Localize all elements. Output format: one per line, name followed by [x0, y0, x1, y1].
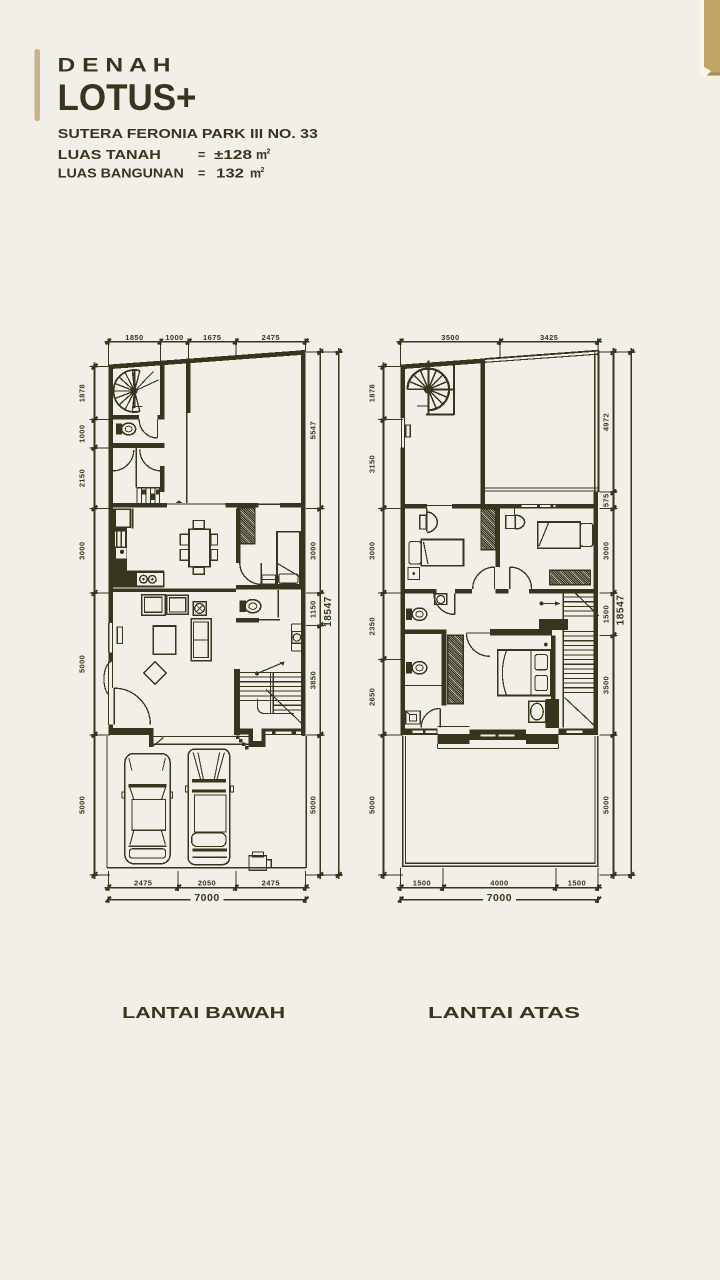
svg-text:1500: 1500 — [413, 878, 431, 887]
svg-text:LANTAI ATAS: LANTAI ATAS — [428, 1005, 580, 1022]
svg-text:1000: 1000 — [165, 333, 183, 342]
svg-text:4972: 4972 — [601, 413, 610, 431]
svg-text:5000: 5000 — [77, 796, 86, 814]
svg-text:3000: 3000 — [601, 542, 610, 560]
svg-text:=: = — [198, 167, 205, 181]
svg-text:18547: 18547 — [616, 595, 627, 626]
svg-text:SUTERA FERONIA PARK III NO. 33: SUTERA FERONIA PARK III NO. 33 — [58, 127, 318, 141]
svg-text:5000: 5000 — [77, 655, 86, 673]
svg-text:1000: 1000 — [77, 425, 86, 443]
svg-text:1500: 1500 — [568, 878, 586, 887]
svg-text:5000: 5000 — [308, 796, 317, 814]
svg-text:1850: 1850 — [125, 333, 143, 342]
svg-text:LANTAI BAWAH: LANTAI BAWAH — [122, 1005, 285, 1022]
svg-text:3425: 3425 — [540, 333, 558, 342]
svg-text:3150: 3150 — [368, 455, 377, 473]
svg-text:1500: 1500 — [601, 605, 610, 623]
svg-text:LOTUS+: LOTUS+ — [58, 77, 197, 118]
svg-text:5000: 5000 — [601, 796, 610, 814]
svg-text:1878: 1878 — [77, 384, 86, 402]
svg-text:1675: 1675 — [203, 333, 221, 342]
svg-text:1878: 1878 — [368, 384, 377, 402]
svg-text:=: = — [198, 148, 205, 162]
svg-text:5547: 5547 — [308, 421, 317, 439]
svg-text:2350: 2350 — [368, 617, 377, 635]
svg-text:2650: 2650 — [368, 688, 377, 706]
svg-text:2150: 2150 — [77, 469, 86, 487]
svg-text:7000: 7000 — [194, 892, 219, 904]
svg-text:3850: 3850 — [308, 671, 317, 689]
svg-text:3000: 3000 — [77, 542, 86, 560]
svg-text:2: 2 — [261, 167, 265, 174]
svg-text:4000: 4000 — [490, 878, 508, 887]
svg-text:2050: 2050 — [198, 878, 216, 887]
svg-text:LUAS BANGUNAN: LUAS BANGUNAN — [58, 167, 184, 181]
svg-text:18547: 18547 — [323, 596, 334, 627]
svg-text:3500: 3500 — [601, 676, 610, 694]
svg-text:1150: 1150 — [308, 600, 317, 618]
svg-text:132: 132 — [216, 167, 244, 181]
svg-text:2: 2 — [267, 149, 271, 156]
svg-text:m: m — [256, 148, 267, 162]
svg-text:LUAS TANAH: LUAS TANAH — [58, 148, 161, 162]
svg-text:3000: 3000 — [368, 542, 377, 560]
svg-text:5000: 5000 — [368, 796, 377, 814]
svg-text:±128: ±128 — [214, 148, 252, 162]
svg-text:7000: 7000 — [487, 892, 512, 904]
svg-text:m: m — [250, 167, 261, 181]
svg-text:575: 575 — [601, 493, 610, 507]
svg-text:2475: 2475 — [262, 333, 280, 342]
svg-text:3000: 3000 — [308, 542, 317, 560]
svg-text:2475: 2475 — [262, 878, 280, 887]
svg-text:D E N A H: D E N A H — [58, 56, 171, 77]
svg-text:3500: 3500 — [441, 333, 459, 342]
svg-text:2475: 2475 — [134, 878, 152, 887]
